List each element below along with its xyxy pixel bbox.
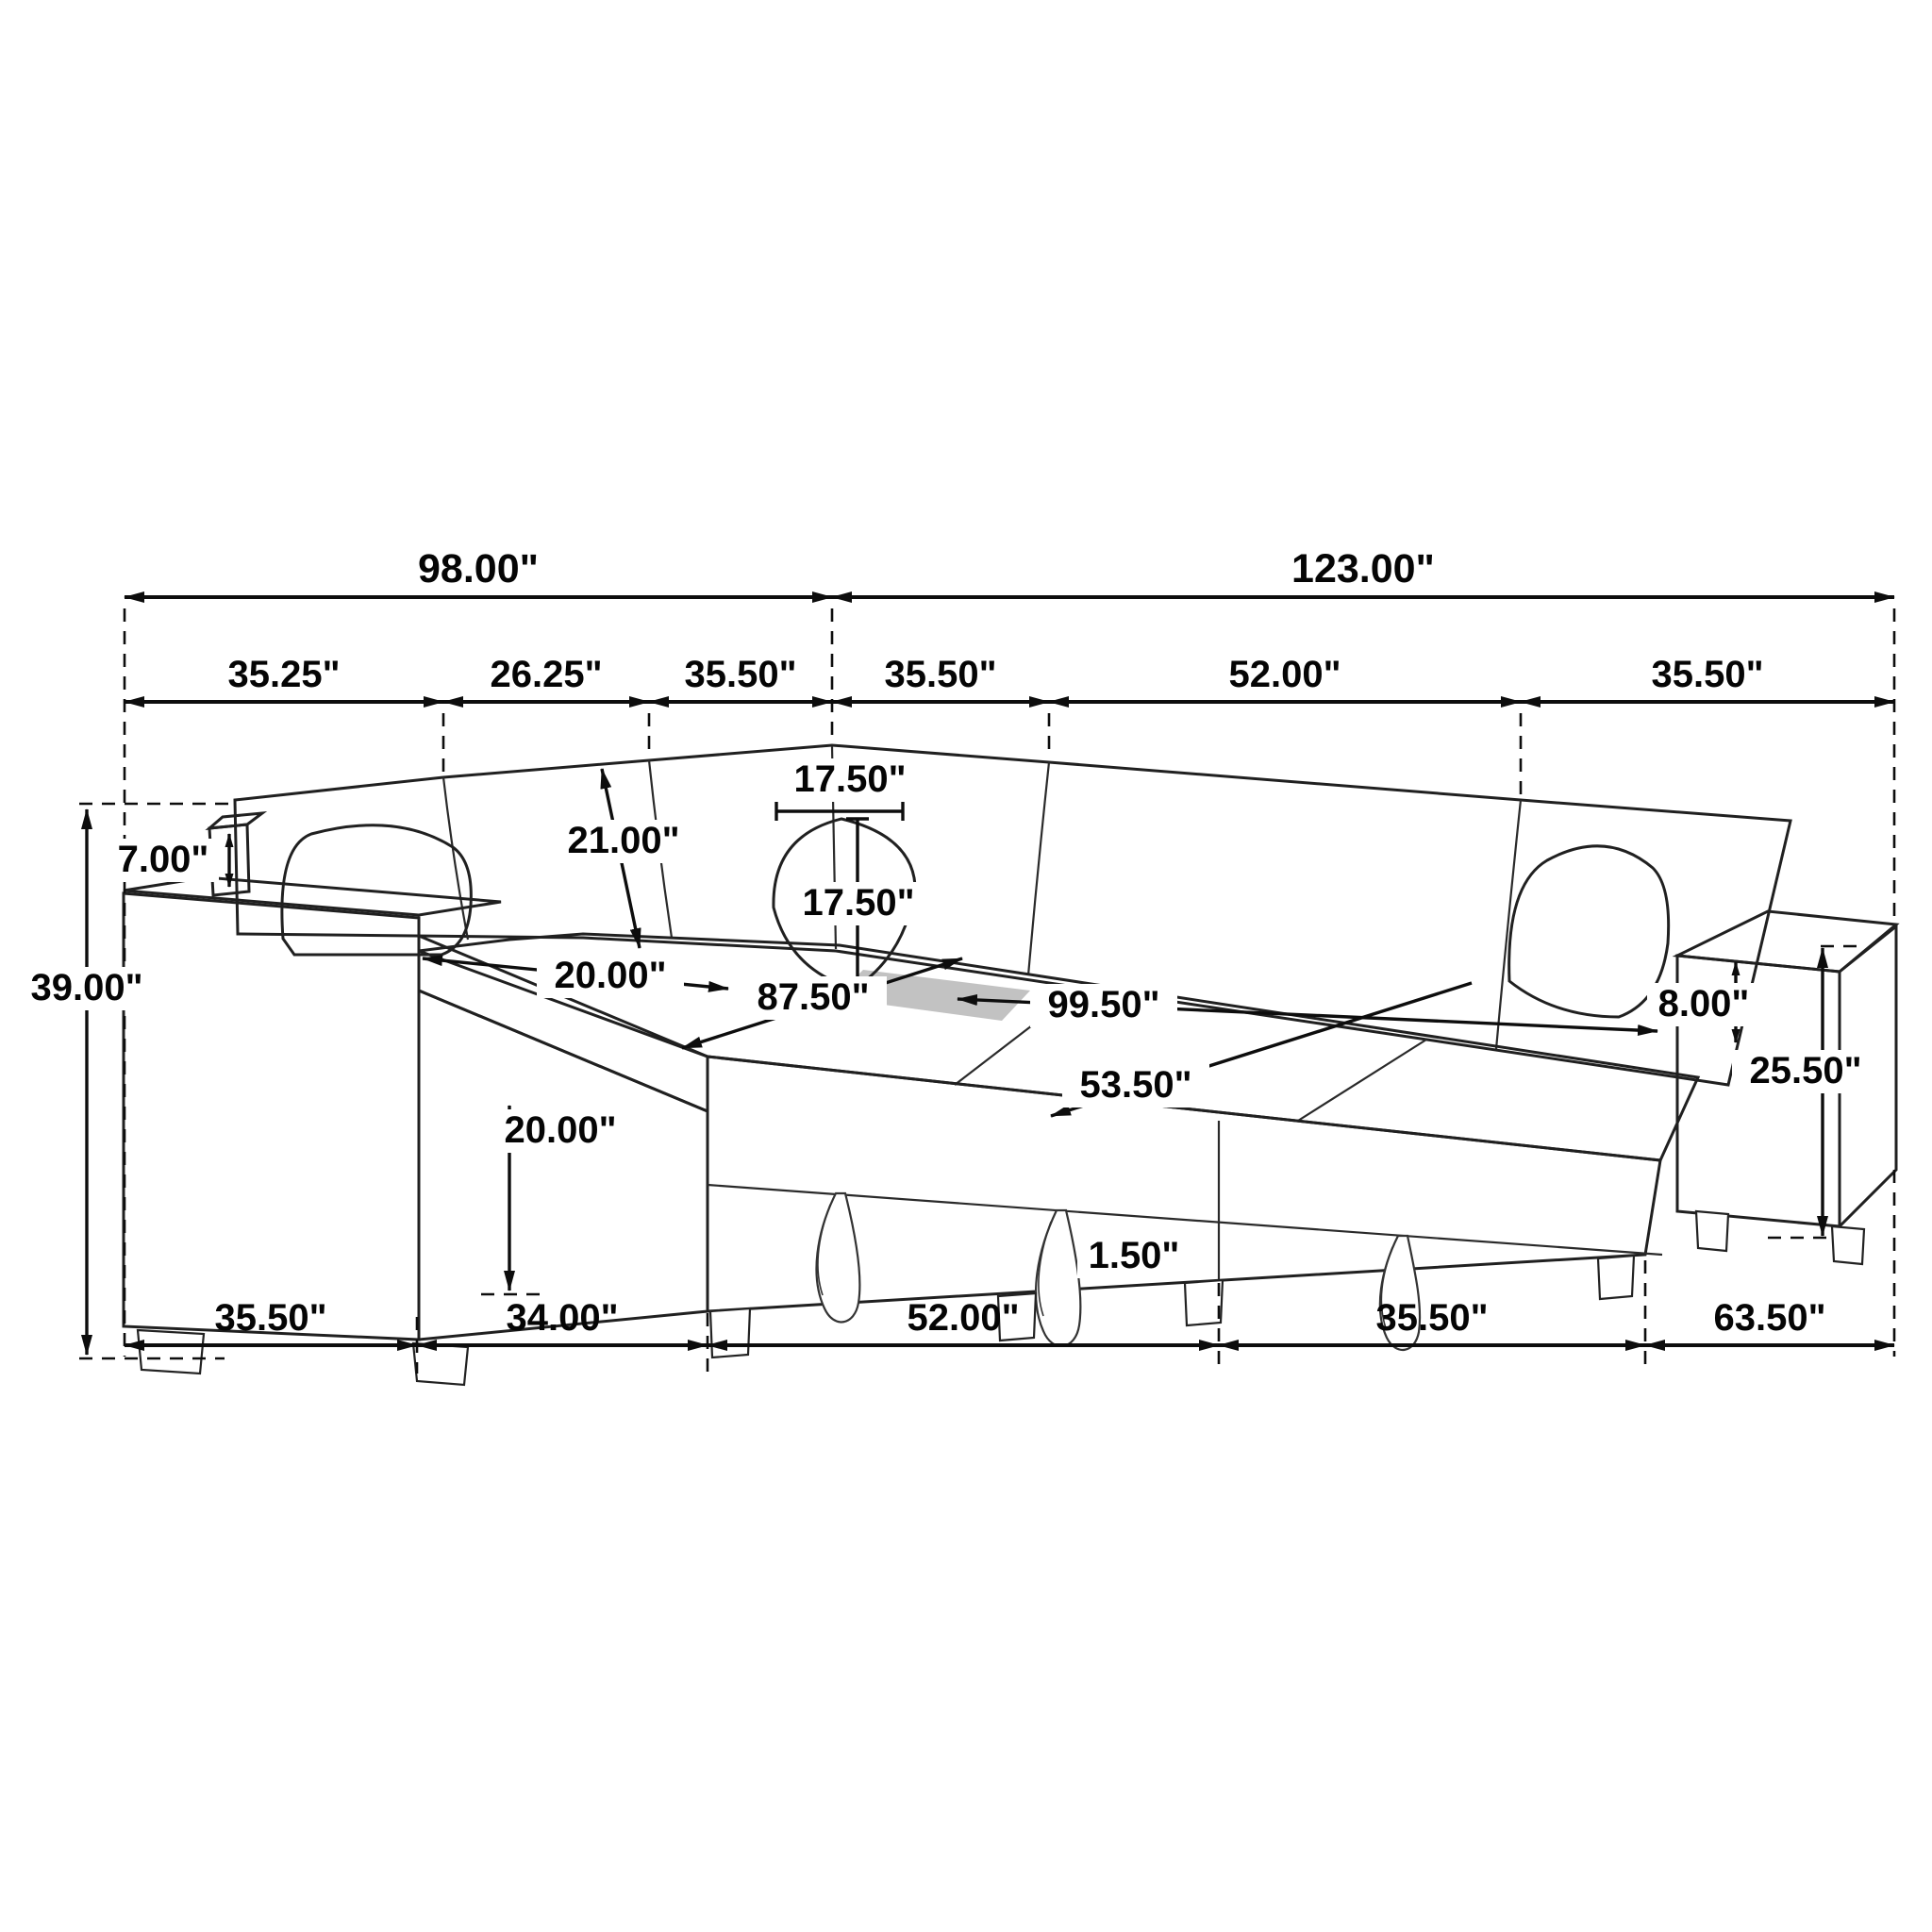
dim-label-seat-front-height: 20.00" bbox=[504, 1109, 616, 1151]
bed-handle bbox=[816, 1193, 859, 1322]
dim-label-section: 35.50" bbox=[684, 654, 796, 695]
dim-label-bed-width: 53.50" bbox=[1079, 1064, 1191, 1106]
bed-handle bbox=[1036, 1210, 1080, 1346]
leg bbox=[138, 1330, 204, 1374]
sofa-illustration bbox=[124, 745, 1896, 1385]
leg bbox=[413, 1343, 468, 1385]
dimension-diagram: 98.00" 123.00" 35.25" 26.25" 35.50" 35.5… bbox=[0, 0, 1932, 1932]
dim-label-pillow-width: 17.50" bbox=[793, 758, 906, 800]
dim-label-back-panel: 7.00" bbox=[118, 839, 209, 880]
diagram-canvas: 98.00" 123.00" 35.25" 26.25" 35.50" 35.5… bbox=[0, 0, 1932, 1932]
dim-label-bed-inner: 87.50" bbox=[757, 976, 869, 1018]
leg bbox=[1832, 1226, 1864, 1264]
dim-label-backrest-length: 21.00" bbox=[567, 820, 679, 861]
dim-label-pillow-height: 17.50" bbox=[802, 882, 914, 924]
dim-label-overall-right: 123.00" bbox=[1291, 546, 1435, 591]
dim-label-section: 26.25" bbox=[490, 654, 602, 695]
dim-label-bottom: 63.50" bbox=[1713, 1297, 1825, 1339]
left-arm-front bbox=[124, 893, 419, 1340]
dim-label-section: 35.50" bbox=[884, 654, 996, 695]
dim-label-overall-left: 98.00" bbox=[418, 546, 539, 591]
dim-label-seat-depth: 20.00" bbox=[554, 955, 666, 996]
backrest-seam bbox=[1028, 762, 1049, 975]
dimension-labels: 98.00" 123.00" 35.25" 26.25" 35.50" 35.5… bbox=[16, 546, 1879, 1339]
leg bbox=[1185, 1280, 1223, 1325]
leg bbox=[1696, 1211, 1728, 1251]
dim-label-section: 35.50" bbox=[1651, 654, 1763, 695]
right-arm-top bbox=[1677, 911, 1896, 972]
dim-label-bed-outer: 99.50" bbox=[1047, 984, 1159, 1025]
pillow-right bbox=[1509, 846, 1669, 1017]
dim-label-bottom: 34.00" bbox=[506, 1297, 618, 1339]
dim-label-bottom: 35.50" bbox=[1375, 1297, 1488, 1339]
dim-label-arm-above-seat: 8.00" bbox=[1658, 983, 1750, 1024]
chaise-front bbox=[419, 991, 708, 1340]
dim-label-bottom: 35.50" bbox=[214, 1297, 326, 1339]
dim-label-section: 35.25" bbox=[227, 654, 340, 695]
backrest-seam bbox=[1496, 800, 1521, 1049]
leg bbox=[710, 1308, 750, 1357]
deck-seam bbox=[1298, 1040, 1426, 1121]
dim-label-section: 52.00" bbox=[1228, 654, 1341, 695]
dim-label-total-height: 39.00" bbox=[30, 967, 142, 1008]
dim-label-arm-height: 25.50" bbox=[1749, 1050, 1861, 1091]
leg bbox=[1598, 1256, 1634, 1299]
dim-label-clearance: 1.50" bbox=[1089, 1235, 1180, 1276]
dim-label-bottom: 52.00" bbox=[907, 1297, 1019, 1339]
